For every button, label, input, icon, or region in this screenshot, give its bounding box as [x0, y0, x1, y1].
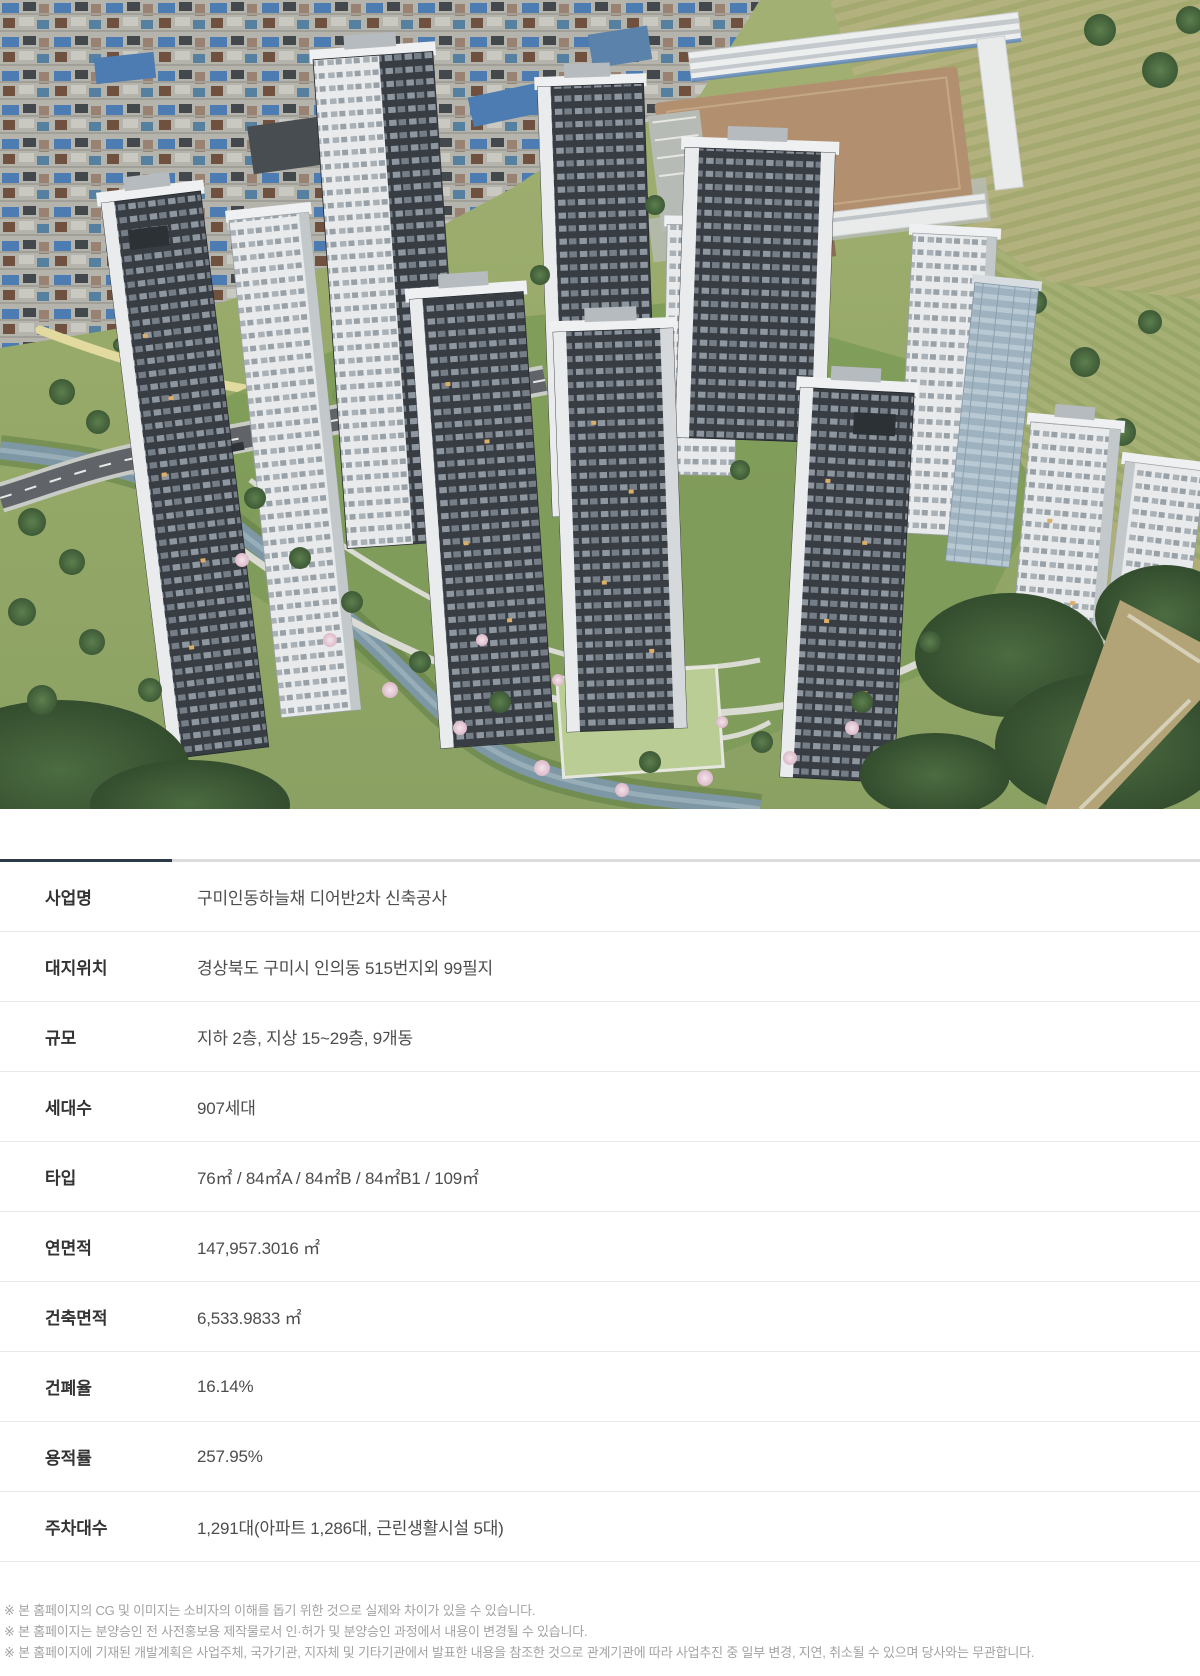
info-label: 사업명: [45, 884, 123, 909]
info-row-gross-floor-area: 연면적 147,957.3016 ㎡: [0, 1212, 1200, 1282]
footnote: ※ 본 홈페이지의 CG 및 이미지는 소비자의 이해를 돕기 위한 것으로 실…: [4, 1600, 1182, 1621]
project-info-table: 사업명 구미인동하늘채 디어반2차 신축공사 대지위치 경상북도 구미시 인의동…: [0, 862, 1200, 1562]
aerial-render: [0, 0, 1200, 809]
footnote: ※ 본 홈페이지는 분양승인 전 사전홍보용 제작물로서 인·허가 및 분양승인…: [4, 1621, 1182, 1642]
info-row-unit-types: 타입 76㎡ / 84㎡A / 84㎡B / 84㎡B1 / 109㎡: [0, 1142, 1200, 1212]
info-label: 건폐율: [45, 1374, 123, 1399]
info-row-households: 세대수 907세대: [0, 1072, 1200, 1142]
info-row-scale: 규모 지하 2층, 지상 15~29층, 9개동: [0, 1002, 1200, 1072]
info-label: 건축면적: [45, 1304, 123, 1329]
info-value: 907세대: [197, 1094, 256, 1119]
tower: [548, 305, 691, 732]
info-row-coverage-ratio: 건폐율 16.14%: [0, 1352, 1200, 1422]
info-value: 1,291대(아파트 1,286대, 근린생활시설 5대): [197, 1514, 504, 1539]
info-label: 대지위치: [45, 954, 123, 979]
info-row-parking: 주차대수 1,291대(아파트 1,286대, 근린생활시설 5대): [0, 1492, 1200, 1562]
section-rule-accent: [0, 859, 172, 862]
info-value: 경상북도 구미시 인의동 515번지외 99필지: [197, 954, 493, 979]
info-label: 세대수: [45, 1094, 123, 1119]
info-row-floor-area-ratio: 용적률 257.95%: [0, 1422, 1200, 1492]
info-value: 구미인동하늘채 디어반2차 신축공사: [197, 884, 447, 909]
info-value: 147,957.3016 ㎡: [197, 1234, 320, 1259]
section-rule: [0, 859, 1200, 862]
info-row-building-area: 건축면적 6,533.9833 ㎡: [0, 1282, 1200, 1352]
info-value: 76㎡ / 84㎡A / 84㎡B / 84㎡B1 / 109㎡: [197, 1164, 479, 1189]
aerial-view-svg: [0, 0, 1200, 809]
info-row-site-location: 대지위치 경상북도 구미시 인의동 515번지외 99필지: [0, 932, 1200, 1002]
info-label: 타입: [45, 1164, 123, 1189]
info-value: 16.14%: [197, 1377, 253, 1397]
info-label: 연면적: [45, 1234, 123, 1259]
info-label: 규모: [45, 1024, 123, 1049]
info-value: 257.95%: [197, 1447, 263, 1467]
info-value: 6,533.9833 ㎡: [197, 1304, 301, 1329]
project-info-section: 사업명 구미인동하늘채 디어반2차 신축공사 대지위치 경상북도 구미시 인의동…: [0, 809, 1200, 1663]
footnote: ※ 본 홈페이지에 기재된 개발계획은 사업주체, 국가기관, 지자체 및 기타…: [4, 1642, 1182, 1663]
info-value: 지하 2층, 지상 15~29층, 9개동: [197, 1024, 413, 1049]
info-label: 주차대수: [45, 1514, 123, 1539]
footnotes: ※ 본 홈페이지의 CG 및 이미지는 소비자의 이해를 돕기 위한 것으로 실…: [4, 1600, 1182, 1663]
page: { "hero": { "description": "구미인동하늘채 디어반2…: [0, 0, 1200, 1676]
info-label: 용적률: [45, 1444, 123, 1469]
info-row-project-name: 사업명 구미인동하늘채 디어반2차 신축공사: [0, 862, 1200, 932]
